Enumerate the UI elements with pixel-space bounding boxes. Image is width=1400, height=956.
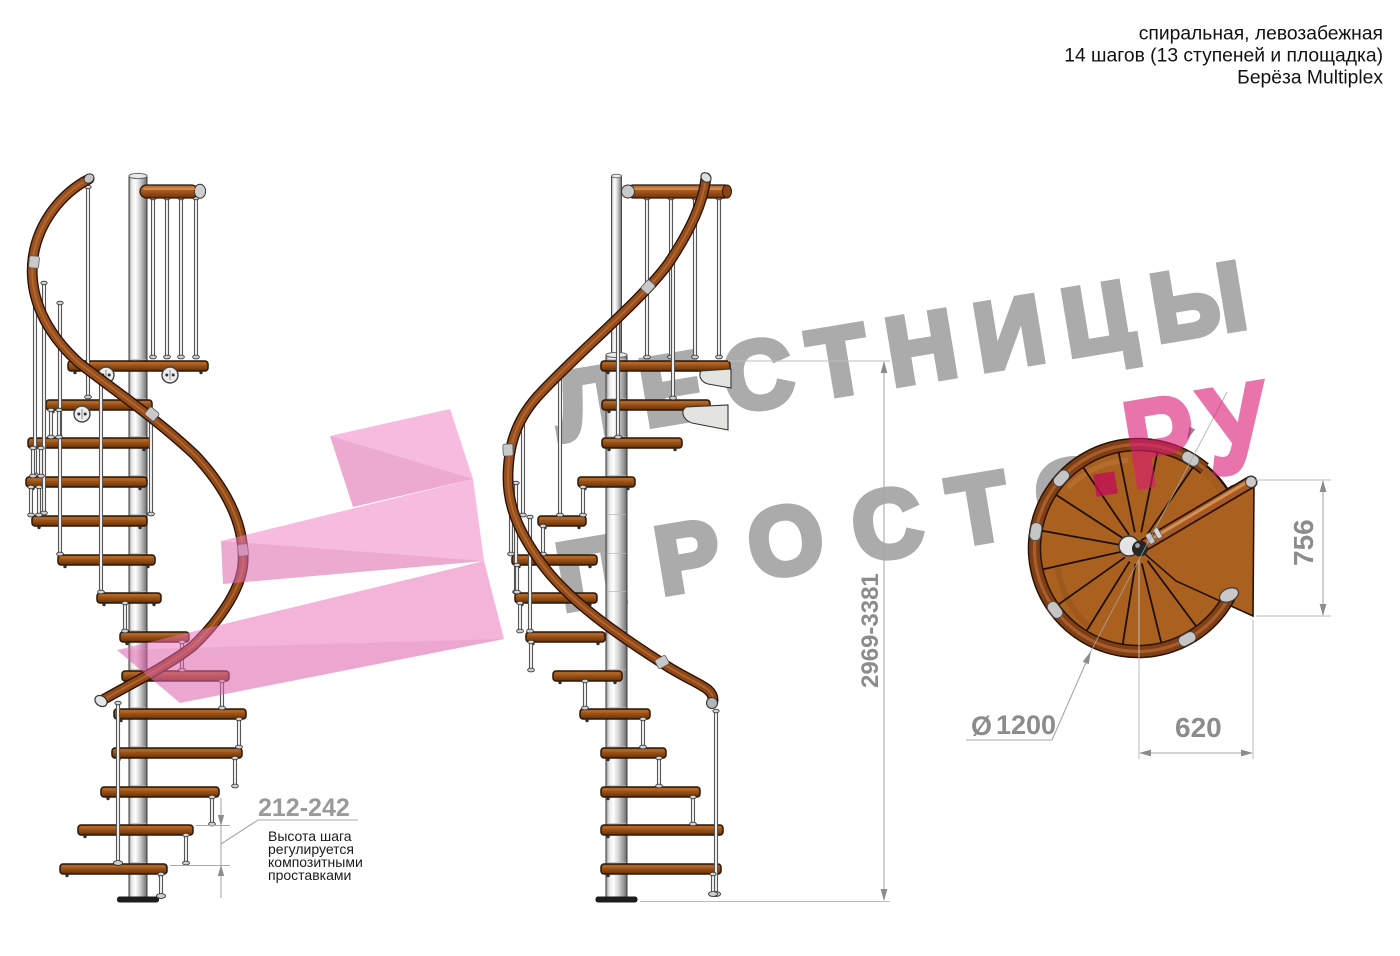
- svg-text:2969-3381: 2969-3381: [857, 573, 884, 688]
- svg-text:620: 620: [1175, 712, 1222, 743]
- svg-text:РУ: РУ: [1114, 353, 1290, 516]
- svg-text:спиральная, левозабежная: спиральная, левозабежная: [1139, 24, 1383, 45]
- svg-text:14 шагов (13 ступеней и площад: 14 шагов (13 ступеней и площадка): [1064, 46, 1383, 67]
- svg-text:756: 756: [1288, 519, 1319, 566]
- svg-text:1200: 1200: [996, 710, 1056, 740]
- svg-text:Берёза Multiplex: Берёза Multiplex: [1237, 68, 1383, 89]
- svg-text:Ø: Ø: [971, 711, 992, 741]
- svg-text:проставками: проставками: [268, 867, 351, 883]
- svg-text:212-242: 212-242: [258, 794, 350, 822]
